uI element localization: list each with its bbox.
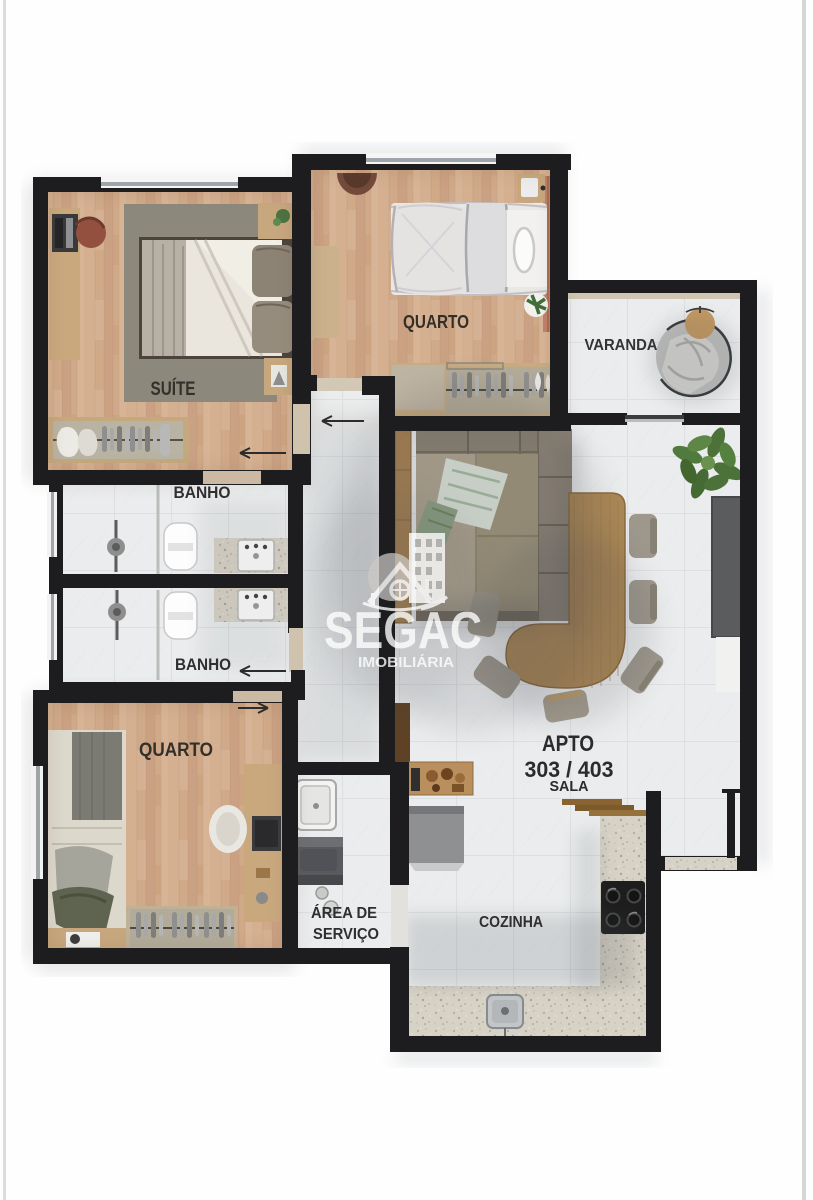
svg-text:APTO: APTO xyxy=(542,731,594,756)
svg-text:SEGAC: SEGAC xyxy=(324,602,482,660)
svg-text:QUARTO: QUARTO xyxy=(403,311,469,332)
svg-text:VARANDA: VARANDA xyxy=(585,337,658,354)
svg-text:SALA: SALA xyxy=(550,778,589,795)
svg-text:COZINHA: COZINHA xyxy=(479,914,543,931)
svg-text:SERVIÇO: SERVIÇO xyxy=(313,926,379,943)
svg-text:BANHO: BANHO xyxy=(175,655,231,674)
svg-text:SUÍTE: SUÍTE xyxy=(151,378,196,400)
svg-text:ÁREA DE: ÁREA DE xyxy=(311,903,377,922)
svg-text:IMOBILIÁRIA: IMOBILIÁRIA xyxy=(358,654,455,671)
svg-text:BANHO: BANHO xyxy=(174,483,231,502)
svg-text:QUARTO: QUARTO xyxy=(139,740,213,761)
